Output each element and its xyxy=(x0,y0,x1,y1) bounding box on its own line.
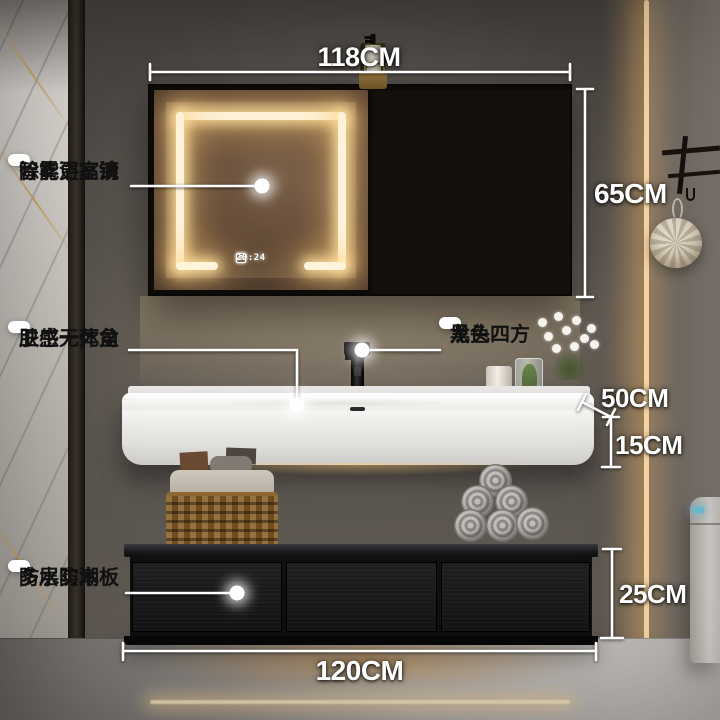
toilet-indicator-light xyxy=(693,507,704,513)
callout-black-faucet: 黑色四方 龙头 xyxy=(439,317,461,329)
shell-body xyxy=(650,218,702,268)
callout-line: 龙头 xyxy=(450,323,490,348)
shelf-cell xyxy=(372,90,374,92)
flower-stems xyxy=(546,336,594,380)
callout-dot-faucet xyxy=(355,343,370,358)
dimension-cabinet-height: 25CM xyxy=(619,579,686,610)
open-shelf-unit xyxy=(372,90,570,294)
basin-drain-slot xyxy=(350,407,365,411)
callout-wood-board: 多层实木板 防水防潮 xyxy=(8,560,30,572)
ornament-string xyxy=(672,198,683,220)
flower xyxy=(572,316,581,325)
callout-dot-mirror xyxy=(255,179,270,194)
mirror-cabinet: 20:24 ≡ ◎ xyxy=(148,84,572,296)
floor-led-line xyxy=(150,700,570,704)
flower xyxy=(562,326,571,335)
callout-smart-mirror: 智能浴室镜 除雾更高清 xyxy=(8,154,30,166)
towel-roll xyxy=(486,509,519,542)
rolled-towel-stack xyxy=(452,462,552,546)
dimension-basin-height: 15CM xyxy=(615,430,682,461)
flower xyxy=(554,312,563,321)
callout-line: 除雾更高清 xyxy=(19,160,119,185)
flower xyxy=(552,344,561,353)
led-bar-top xyxy=(176,112,346,120)
cabinet-drawer xyxy=(132,562,282,632)
flower xyxy=(544,332,553,341)
led-bar-left xyxy=(176,112,184,270)
callout-integrated-basin: 肤感一体盆 卫生无死角 xyxy=(8,321,30,333)
rack-hook xyxy=(686,188,695,201)
flower xyxy=(590,340,599,349)
callout-line: 防水防潮 xyxy=(19,566,99,591)
flower xyxy=(587,324,596,333)
product-photo-stage: 20:24 ≡ ◎ xyxy=(0,0,720,720)
led-bar-bottom-left xyxy=(176,262,218,270)
rack-bar xyxy=(668,170,720,179)
toilet-lid-seam xyxy=(690,523,720,525)
callout-line: 卫生无死角 xyxy=(19,327,119,352)
wicker-basket xyxy=(166,470,278,550)
led-bar-bottom-right xyxy=(304,262,346,270)
callout-dot-cabinet xyxy=(230,586,245,601)
flower xyxy=(538,318,547,327)
cabinet-drawer xyxy=(441,562,590,632)
towel-roll xyxy=(516,507,549,540)
dimension-basin-depth: 50CM xyxy=(601,383,668,414)
mirror-touch-display: 20:24 ≡ ◎ xyxy=(236,252,306,263)
shell-ornament xyxy=(650,214,702,268)
flower xyxy=(580,334,589,343)
white-flowers xyxy=(532,310,606,380)
dimension-cabinet-width: 120CM xyxy=(123,655,596,687)
callout-dot-basin xyxy=(290,398,305,413)
smart-toilet xyxy=(690,497,720,663)
vanity-cabinet xyxy=(130,556,592,638)
towel-roll xyxy=(454,509,487,542)
rack-bar xyxy=(662,145,720,155)
vertical-led-strip xyxy=(644,0,649,648)
cabinet-drawer xyxy=(286,562,437,632)
cabinet-bottom-edge xyxy=(124,636,598,645)
faucet-display-window xyxy=(354,367,361,376)
light-button-icon: ◎ xyxy=(236,253,246,263)
dimension-mirror-width: 118CM xyxy=(148,42,570,73)
dimension-mirror-height: 65CM xyxy=(594,178,667,210)
led-bar-right xyxy=(338,112,346,270)
basket-weave xyxy=(166,492,278,550)
gold-vein xyxy=(0,9,74,133)
gold-pouch xyxy=(359,71,387,89)
basin-bowl-shade xyxy=(172,399,502,409)
flower xyxy=(570,342,579,351)
rack-post xyxy=(677,136,688,194)
